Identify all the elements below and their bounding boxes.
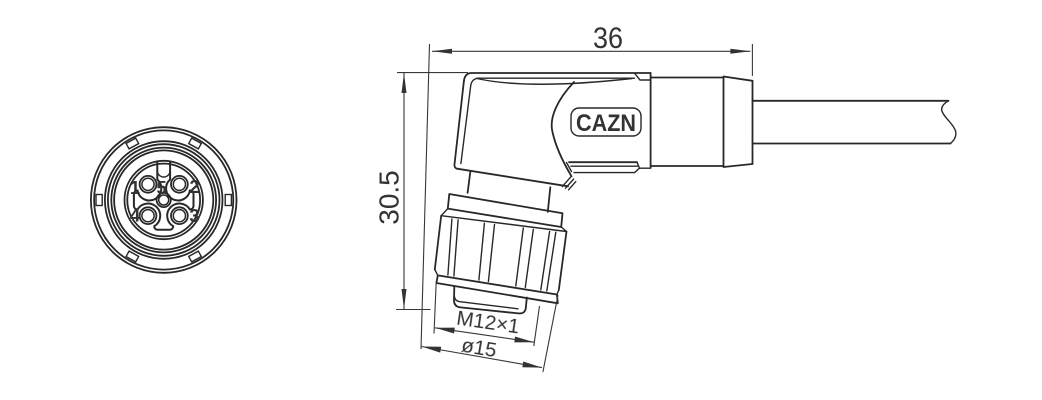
svg-text:4: 4 [130, 204, 141, 225]
svg-text:36: 36 [593, 22, 623, 55]
svg-text:3: 3 [189, 205, 199, 226]
svg-text:30.5: 30.5 [374, 170, 405, 225]
svg-text:CAZN: CAZN [576, 110, 636, 137]
svg-text:1: 1 [130, 177, 140, 198]
svg-text:5: 5 [156, 177, 166, 198]
svg-text:2: 2 [189, 176, 199, 197]
